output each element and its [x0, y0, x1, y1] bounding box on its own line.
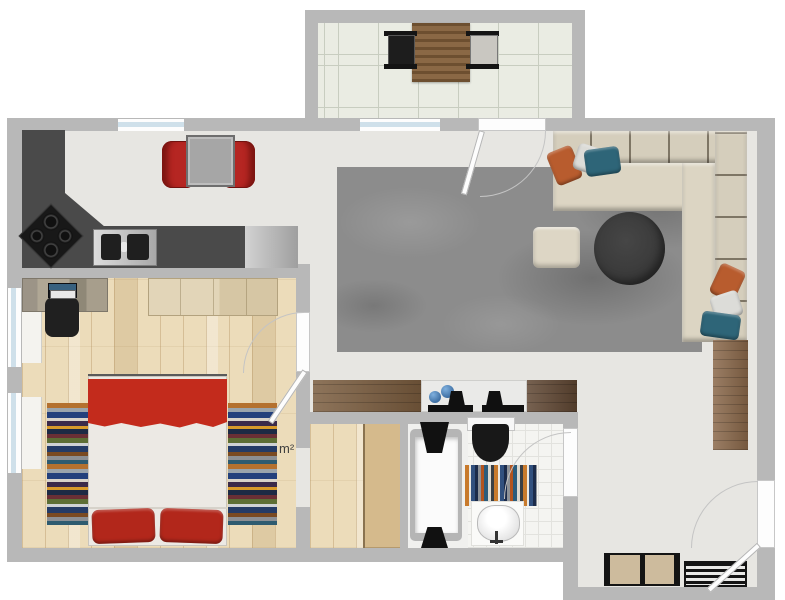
entry-bench-cushion-right	[645, 555, 674, 584]
floor-plan: m²	[0, 0, 785, 600]
living-window	[360, 119, 440, 131]
wall-closet-west-lower	[296, 507, 310, 548]
balcony-chair-left-seat	[388, 35, 415, 67]
bedroom-window-2	[8, 393, 21, 473]
pouf[interactable]	[533, 227, 580, 268]
dining-table[interactable]	[186, 135, 235, 187]
sofa-pillow-teal-right[interactable]	[699, 310, 741, 340]
wall-bottom-left	[7, 548, 578, 562]
balcony-wall-top	[305, 10, 585, 23]
balcony-chair-right-seat	[470, 35, 498, 67]
bed[interactable]	[88, 374, 227, 546]
tv-screen-left[interactable]	[428, 405, 473, 412]
sideboard-right[interactable]	[527, 380, 577, 412]
washbasin-faucet-handle	[490, 540, 503, 543]
entry-bench[interactable]	[604, 553, 680, 586]
balcony-wall-left	[305, 10, 318, 118]
office-chair-headrest	[50, 290, 76, 299]
sink-faucet	[121, 242, 127, 252]
sink-basin-right	[127, 234, 149, 260]
sink-basin-left	[101, 234, 121, 260]
wall-bedroom-living-upper	[296, 264, 310, 312]
balcony-chair-left[interactable]	[384, 31, 417, 69]
office-chair[interactable]	[45, 297, 79, 337]
washbasin[interactable]	[477, 505, 520, 542]
balcony-wall-right	[572, 10, 585, 118]
sofa-pillow-teal-left[interactable]	[583, 146, 621, 178]
wardrobe[interactable]	[148, 278, 278, 316]
runner-rug-left[interactable]	[47, 403, 88, 525]
balcony-table[interactable]	[412, 23, 470, 82]
bed-pillow-left	[91, 508, 155, 544]
bed-blanket	[88, 379, 227, 429]
kitchen-sink[interactable]	[93, 229, 157, 266]
kitchen-window	[118, 119, 184, 131]
balcony-door[interactable]	[478, 118, 546, 131]
bed-pillow-right	[159, 508, 223, 544]
kitchen-counter-end[interactable]	[245, 226, 298, 268]
entry-door[interactable]	[757, 480, 775, 548]
tv-screen-right[interactable]	[482, 405, 524, 412]
wall-closet-west-upper	[296, 424, 310, 448]
bedroom-window-1	[8, 288, 21, 367]
entry-bench-cushion-left	[610, 555, 640, 584]
round-coffee-table[interactable]	[594, 212, 665, 285]
area-label: m²	[279, 441, 294, 456]
tall-cabinet[interactable]	[713, 340, 748, 450]
sideboard-left[interactable]	[313, 380, 421, 412]
balcony-chair-right-armrest-bottom	[466, 64, 499, 69]
wall-bottom-right	[563, 587, 775, 600]
closet-cabinet[interactable]	[363, 424, 400, 548]
window-sill-2	[22, 397, 42, 469]
balcony-chair-left-armrest-bottom	[384, 64, 417, 69]
decor-sphere-small[interactable]	[429, 391, 441, 403]
balcony-chair-right[interactable]	[466, 31, 499, 69]
